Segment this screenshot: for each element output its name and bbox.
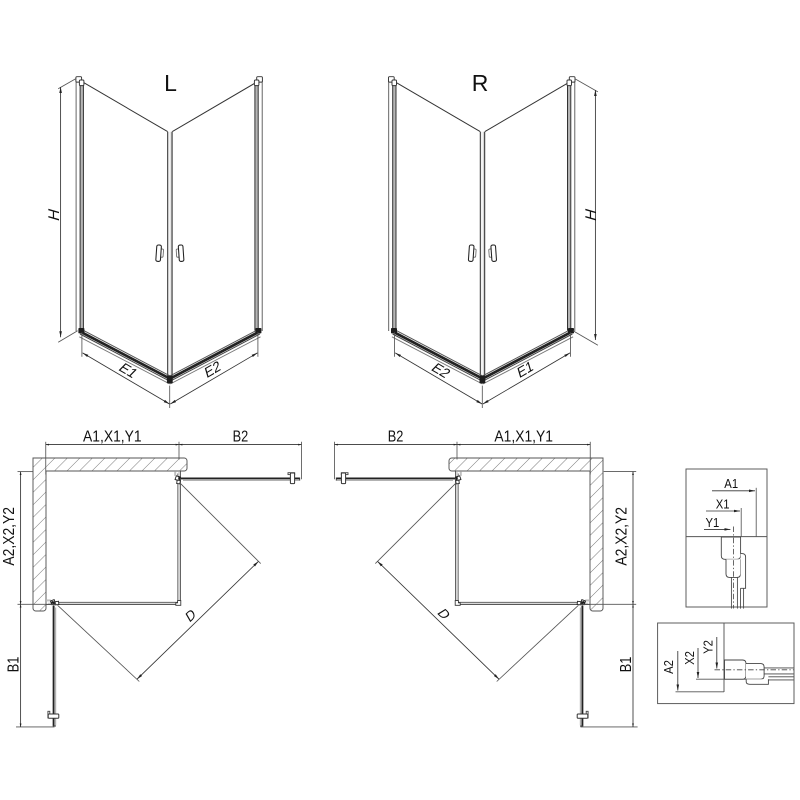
svg-text:X1: X1: [716, 497, 730, 512]
svg-text:X2: X2: [682, 651, 697, 665]
svg-text:A2: A2: [661, 660, 676, 674]
svg-text:L: L: [164, 70, 177, 96]
svg-text:B2: B2: [233, 429, 249, 446]
svg-text:A2,X2,Y2: A2,X2,Y2: [1, 507, 18, 566]
svg-text:B1: B1: [618, 657, 635, 673]
svg-text:A1: A1: [724, 476, 738, 491]
svg-text:Y2: Y2: [701, 640, 716, 654]
svg-text:B1: B1: [5, 657, 22, 673]
svg-text:Y1: Y1: [706, 515, 720, 530]
svg-text:A1,X1,Y1: A1,X1,Y1: [494, 429, 553, 446]
svg-text:B2: B2: [388, 429, 404, 446]
svg-text:A1,X1,Y1: A1,X1,Y1: [83, 429, 142, 446]
svg-text:R: R: [472, 70, 489, 96]
svg-text:A2,X2,Y2: A2,X2,Y2: [614, 507, 631, 566]
